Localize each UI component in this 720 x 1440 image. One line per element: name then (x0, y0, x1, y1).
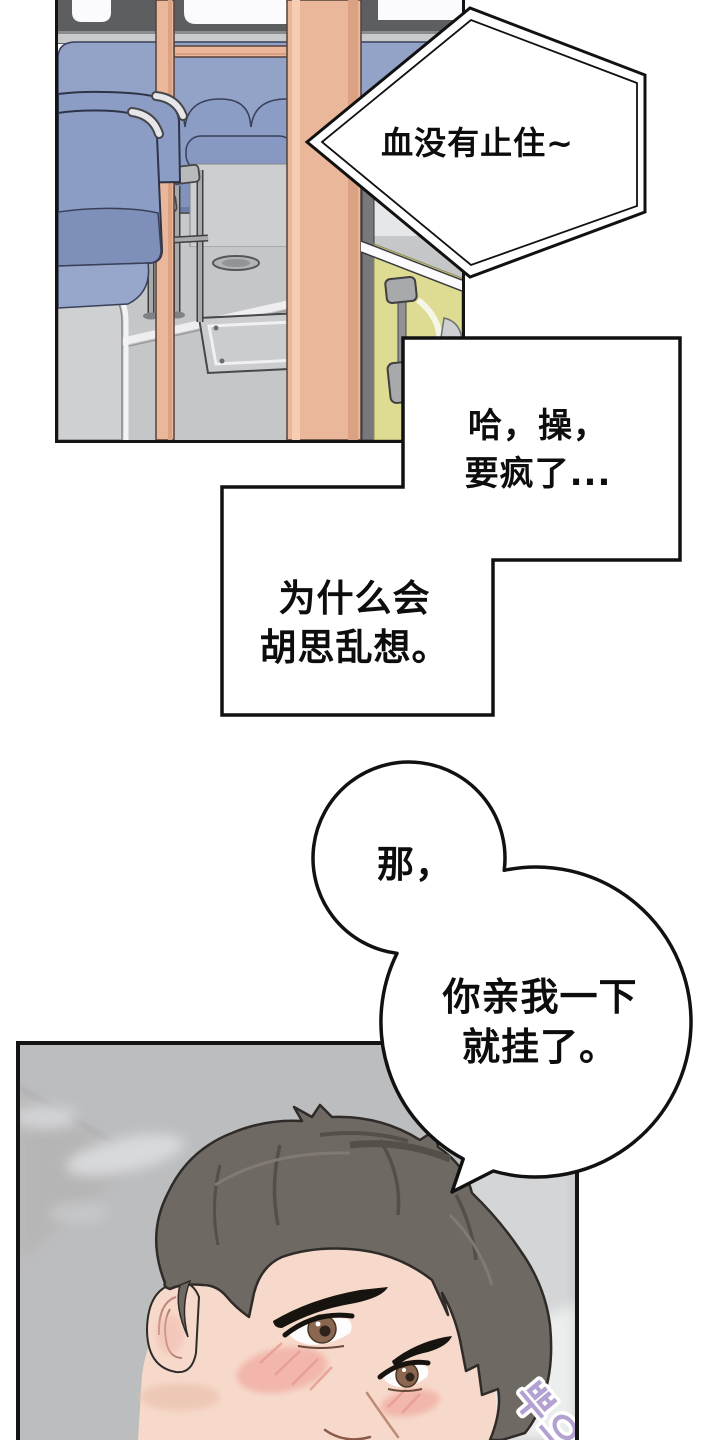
speech-text-rect-a-line1: 哈，操， (413, 402, 663, 450)
bus-window (58, 0, 462, 44)
ear (147, 1283, 199, 1373)
speech-text-rect-a: 哈，操， 要疯了... (413, 402, 663, 498)
comic-page: 뿌으 血没有止住~ 哈，操， 要疯了... 为什么会 胡思乱想。 那， 你亲我一… (0, 0, 720, 1440)
speech-text-rect-b: 为什么会 胡思乱想。 (232, 574, 477, 672)
speech-text-rect-a-line2: 要疯了... (413, 450, 663, 498)
bus-pole-right (287, 0, 361, 440)
panel-bus-interior (55, 0, 465, 443)
panel-face-closeup: 뿌으 (16, 1041, 579, 1440)
speech-text-cloud-line1: 你亲我一下 (418, 972, 662, 1022)
bus-right-wall (361, 96, 462, 236)
speech-text-cloud-big: 你亲我一下 就挂了。 (418, 972, 662, 1072)
speech-text-cloud-line2: 就挂了。 (418, 1022, 662, 1072)
speech-text-rect-b-line1: 为什么会 (232, 574, 477, 623)
speech-text-rect-b-line2: 胡思乱想。 (232, 623, 477, 672)
bus-interior-scene (58, 0, 462, 440)
face-scene: 뿌으 (20, 1045, 575, 1440)
speech-text-hex: 血没有止住~ (330, 122, 625, 164)
speech-text-cloud-small: 那， (345, 841, 485, 890)
